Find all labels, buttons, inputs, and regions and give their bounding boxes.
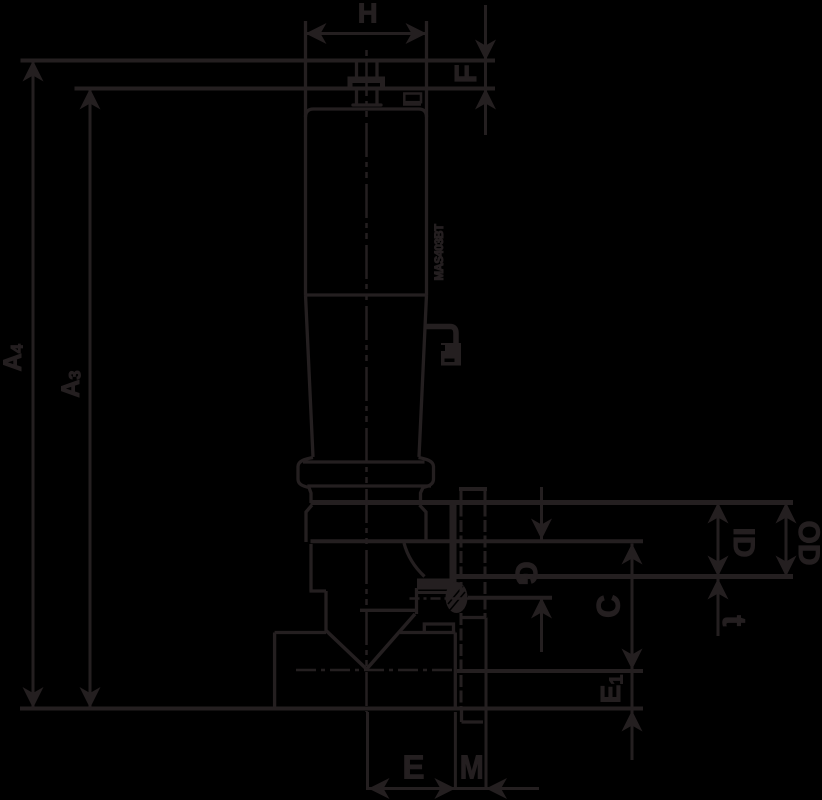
svg-text:ID: ID xyxy=(727,528,760,558)
svg-text:E: E xyxy=(402,749,424,786)
svg-text:G: G xyxy=(509,561,544,585)
svg-text:MAS403BT: MAS403BT xyxy=(434,224,446,281)
svg-text:M: M xyxy=(460,749,484,786)
svg-text:t: t xyxy=(716,615,753,626)
svg-text:H: H xyxy=(358,0,378,29)
svg-text:OD: OD xyxy=(792,521,822,566)
svg-text:F: F xyxy=(448,64,483,83)
svg-text:C: C xyxy=(590,595,626,618)
